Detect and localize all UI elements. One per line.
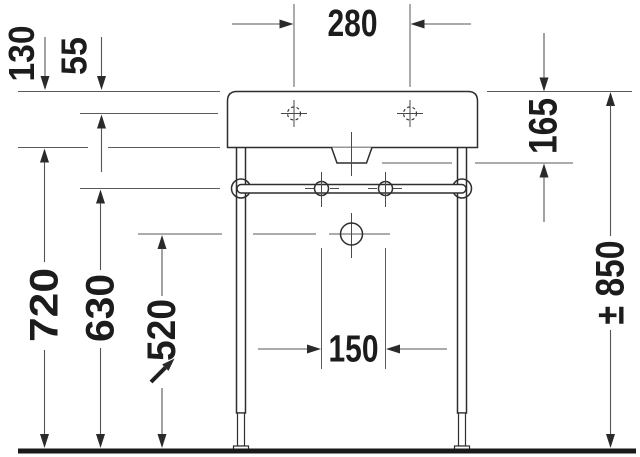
dim-label-720: 720 — [23, 268, 67, 342]
dim-label-520: 520 — [140, 299, 184, 361]
washbasin — [228, 92, 478, 259]
adjustable-height-arrow-icon — [151, 359, 175, 383]
dim-label-850: ± 850 — [589, 241, 633, 325]
left-foot — [238, 413, 245, 446]
dim-label-150: 150 — [329, 329, 379, 371]
dim-label-165: 165 — [522, 98, 566, 154]
dim-label-280: 280 — [328, 3, 378, 45]
dim-label-55: 55 — [54, 37, 95, 75]
towel-rail — [237, 185, 466, 194]
dim-label-130: 130 — [1, 26, 42, 82]
technical-drawing-page: 280 130 55 165 720 630 520 150 ± 850 — [0, 0, 640, 457]
right-foot — [459, 413, 466, 446]
basin-outline — [228, 92, 478, 148]
dim-label-630: 630 — [79, 274, 123, 342]
floor-line — [18, 449, 636, 454]
console-frame — [232, 147, 472, 451]
washbasin-dimension-diagram: 280 130 55 165 720 630 520 150 ± 850 — [0, 0, 640, 457]
dimension-lines — [40, 20, 615, 449]
